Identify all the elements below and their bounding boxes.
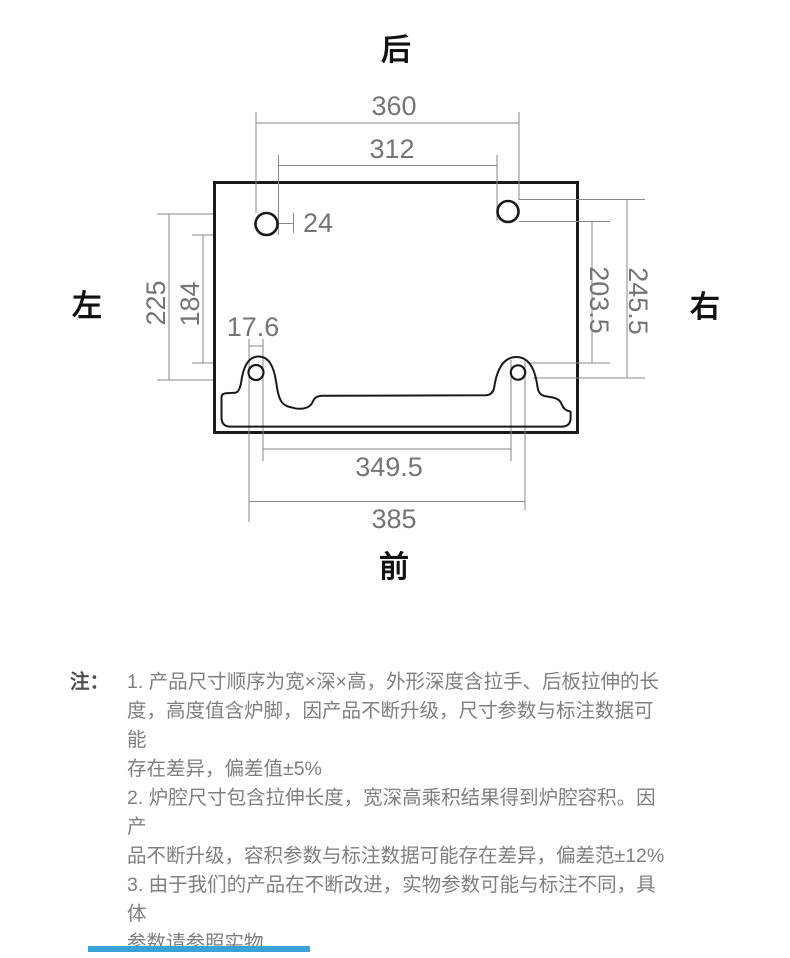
dim-label-top-outer: 360 (371, 91, 416, 121)
note-line: 1. 产品尺寸顺序为宽×深×高，外形深度含拉手、后板拉伸的长 (127, 668, 667, 697)
note-line: 3. 由于我们的产品在不断改进，实物参数可能与标注不同，具体 (127, 871, 667, 929)
notes-label: 注： (70, 668, 109, 697)
note-line: 品不断升级，容积参数与标注数据可能存在差异，偏差范±12% (127, 842, 667, 871)
dimension-diagram: 360 312 24 225 184 203.5 245.5 17.6 349.… (0, 0, 790, 620)
dim-label-top-inner: 312 (369, 134, 414, 164)
dim-label-left-inner: 184 (175, 281, 205, 326)
dim-label-right-inner: 203.5 (584, 266, 614, 334)
dim-label-bottom-inner: 349.5 (355, 452, 423, 482)
orientation-label-back: 后 (381, 34, 411, 67)
mount-hole-back-left (256, 213, 278, 235)
dim-label-hole-17-6: 17.6 (227, 312, 280, 342)
mount-hole-front-left (249, 365, 264, 380)
dim-label-hole-24: 24 (303, 208, 333, 238)
orientation-label-left: 左 (72, 290, 102, 323)
next-section-peek-bar (88, 946, 310, 952)
product-dimension-page: 360 312 24 225 184 203.5 245.5 17.6 349.… (0, 0, 790, 952)
dim-label-bottom-outer: 385 (371, 504, 416, 534)
orientation-label-right: 右 (690, 291, 720, 324)
note-line: 度，高度值含炉脚，因产品不断升级，尺寸参数与标注数据可能 (127, 697, 667, 755)
note-line: 2. 炉腔尺寸包含拉伸长度，宽深高乘积结果得到炉腔容积。因产 (127, 784, 667, 842)
notes-body: 1. 产品尺寸顺序为宽×深×高，外形深度含拉手、后板拉伸的长 度，高度值含炉脚，… (127, 668, 667, 958)
note-line: 存在差异，偏差值±5% (127, 755, 667, 784)
dim-label-right-outer: 245.5 (623, 267, 653, 335)
dim-label-left-outer: 225 (141, 280, 171, 325)
mount-hole-front-right (511, 365, 525, 379)
note-line: 参数请参照实物 (127, 929, 667, 958)
mount-hole-back-right (498, 201, 519, 222)
orientation-label-front: 前 (379, 551, 409, 584)
